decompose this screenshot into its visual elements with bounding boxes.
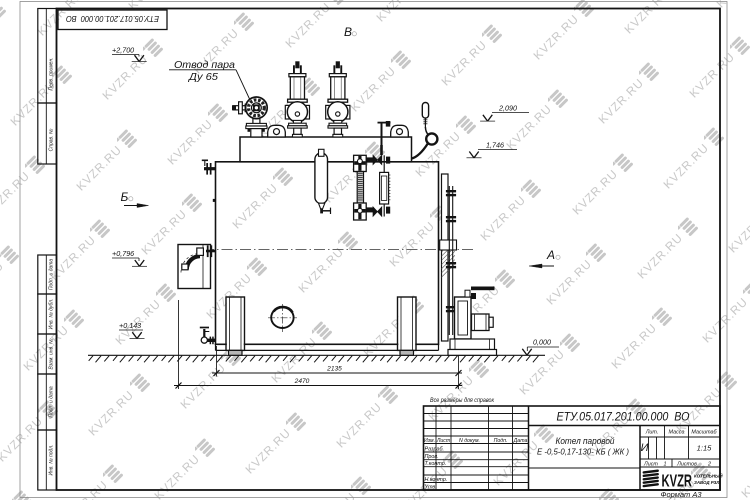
svg-text:Подп.: Подп. xyxy=(494,438,508,444)
svg-text:Н.контр.: Н.контр. xyxy=(424,477,447,483)
svg-text:Подп. и дата: Подп. и дата xyxy=(49,259,55,291)
svg-text:Все размеры для справок: Все размеры для справок xyxy=(430,396,495,404)
svg-text:ЗАВОД РЗЛ: ЗАВОД РЗЛ xyxy=(694,480,720,485)
svg-text:Перв. примен.: Перв. примен. xyxy=(49,57,55,90)
svg-text:КОТЕЛЬНЫЙ: КОТЕЛЬНЫЙ xyxy=(694,474,723,479)
svg-text:Инв. № подл.: Инв. № подл. xyxy=(49,444,55,475)
svg-text:Котел паровой: Котел паровой xyxy=(555,436,614,446)
svg-text:Масштаб: Масштаб xyxy=(691,430,717,436)
svg-text:Лист: Лист xyxy=(436,438,451,444)
svg-text:Б: Б xyxy=(121,190,129,204)
svg-text:Е -0,5-0,17-130- КБ ( ЖК ): Е -0,5-0,17-130- КБ ( ЖК ) xyxy=(537,446,629,456)
svg-text:Утв.: Утв. xyxy=(423,485,436,491)
svg-text:Пров.: Пров. xyxy=(424,454,438,460)
svg-text:Формат А3: Формат А3 xyxy=(660,492,701,499)
svg-text:Ду 65: Ду 65 xyxy=(188,72,218,83)
svg-text:+0,796: +0,796 xyxy=(112,249,134,258)
svg-text:В: В xyxy=(344,25,352,39)
svg-text:2470: 2470 xyxy=(294,378,310,385)
svg-text:Отвод пара: Отвод пара xyxy=(174,60,235,71)
svg-text:1:15: 1:15 xyxy=(697,444,713,453)
svg-text:ЕТУ.05.017.201.00.000 ВО: ЕТУ.05.017.201.00.000 ВО xyxy=(556,410,689,424)
svg-text:2135: 2135 xyxy=(326,365,342,372)
svg-text:Дата: Дата xyxy=(513,438,528,444)
svg-text:И: И xyxy=(641,442,649,454)
svg-text:KVZR: KVZR xyxy=(661,470,692,490)
svg-text:N докум.: N докум. xyxy=(459,438,480,444)
svg-text:А: А xyxy=(546,248,555,262)
svg-text:Взам. инв. №: Взам. инв. № xyxy=(49,338,55,370)
svg-text:Изм.: Изм. xyxy=(424,438,435,444)
svg-text:+0,143: +0,143 xyxy=(119,321,141,330)
svg-text:+2,700: +2,700 xyxy=(112,45,134,54)
svg-text:Лист: Лист xyxy=(643,461,658,467)
svg-text:0,000: 0,000 xyxy=(533,337,551,346)
svg-text:Справ. №: Справ. № xyxy=(49,128,55,151)
svg-text:2: 2 xyxy=(707,461,711,467)
svg-text:1,746: 1,746 xyxy=(486,141,504,150)
svg-text:Листов: Листов xyxy=(676,461,697,467)
svg-text:ЕТУ.05.017.201.00.000 ВО: ЕТУ.05.017.201.00.000 ВО xyxy=(66,14,159,24)
svg-text:Подп. и дата: Подп. и дата xyxy=(49,386,55,418)
svg-text:Масса: Масса xyxy=(669,430,685,436)
svg-text:2,090: 2,090 xyxy=(498,103,517,112)
svg-text:Лит.: Лит. xyxy=(645,430,659,436)
svg-text:Разраб.: Разраб. xyxy=(424,446,444,452)
svg-text:Инв. № дубл.: Инв. № дубл. xyxy=(49,299,55,330)
svg-text:1: 1 xyxy=(663,461,666,467)
svg-text:Т.контр.: Т.контр. xyxy=(424,461,446,467)
